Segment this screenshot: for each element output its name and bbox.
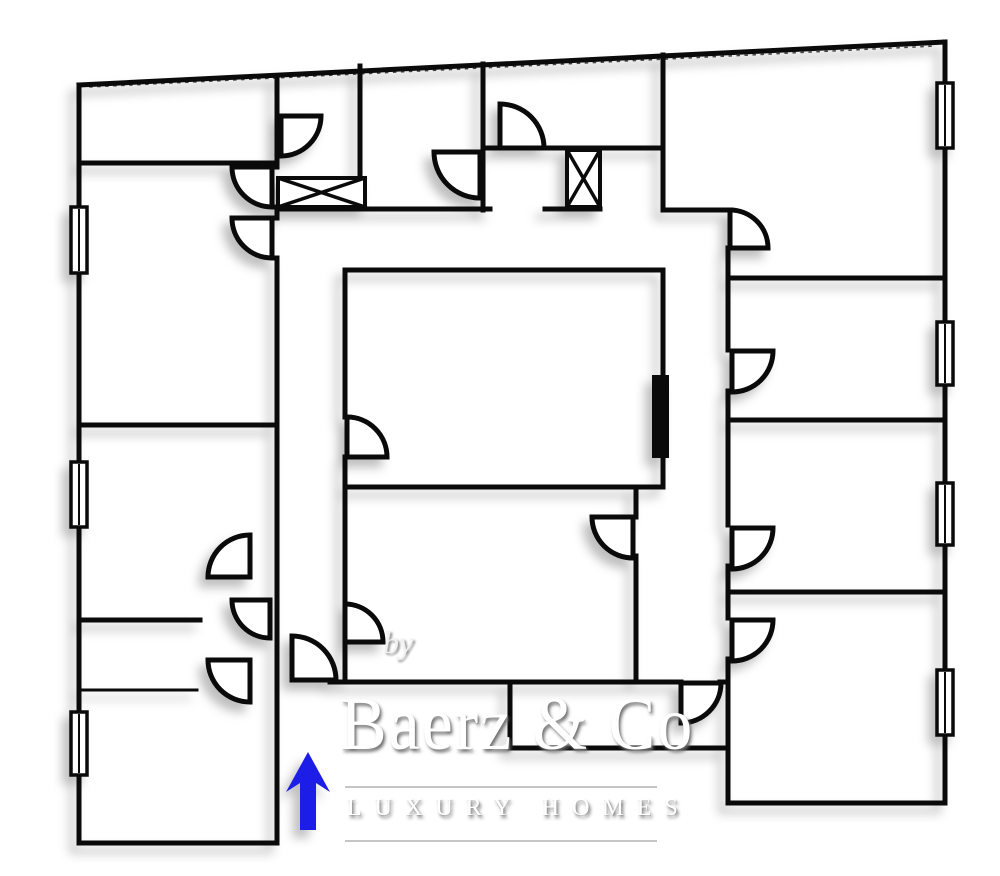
door-swing: [730, 210, 768, 248]
door-swing: [592, 517, 633, 558]
watermark-rule-top: [345, 786, 657, 788]
window: [937, 483, 953, 545]
shaft-box: [567, 150, 600, 207]
door-swing: [434, 152, 480, 198]
facade-tick-line: [90, 46, 935, 87]
door-swing: [292, 636, 336, 680]
window: [71, 462, 87, 527]
entrance-arrow-icon: [286, 752, 330, 830]
door-swing: [732, 351, 773, 392]
window: [71, 207, 87, 273]
window: [937, 83, 953, 148]
door-swing: [347, 417, 387, 457]
window: [937, 322, 953, 385]
watermark-tagline: LUXURY HOMES: [347, 795, 691, 822]
window: [71, 712, 87, 775]
door-swing: [281, 116, 321, 156]
door-swing: [232, 167, 272, 207]
solid-door-rect: [652, 375, 669, 458]
door-swing: [345, 604, 383, 642]
wall: [79, 42, 945, 85]
door-swing: [732, 528, 773, 569]
door-swing: [208, 660, 250, 702]
door-swing: [232, 218, 272, 258]
watermark-by: by: [383, 624, 413, 661]
windows-layer: [71, 83, 953, 775]
door-swing: [732, 620, 773, 661]
door-swing: [232, 600, 270, 638]
door-swing: [500, 104, 544, 148]
door-swing: [208, 535, 250, 577]
floor-plan-page: by Baerz & Co LUXURY HOMES: [0, 0, 1000, 876]
window: [937, 670, 953, 735]
watermark-brand: Baerz & Co: [340, 682, 694, 768]
watermark-rule-bottom: [345, 840, 657, 842]
shaft-box: [278, 178, 365, 207]
